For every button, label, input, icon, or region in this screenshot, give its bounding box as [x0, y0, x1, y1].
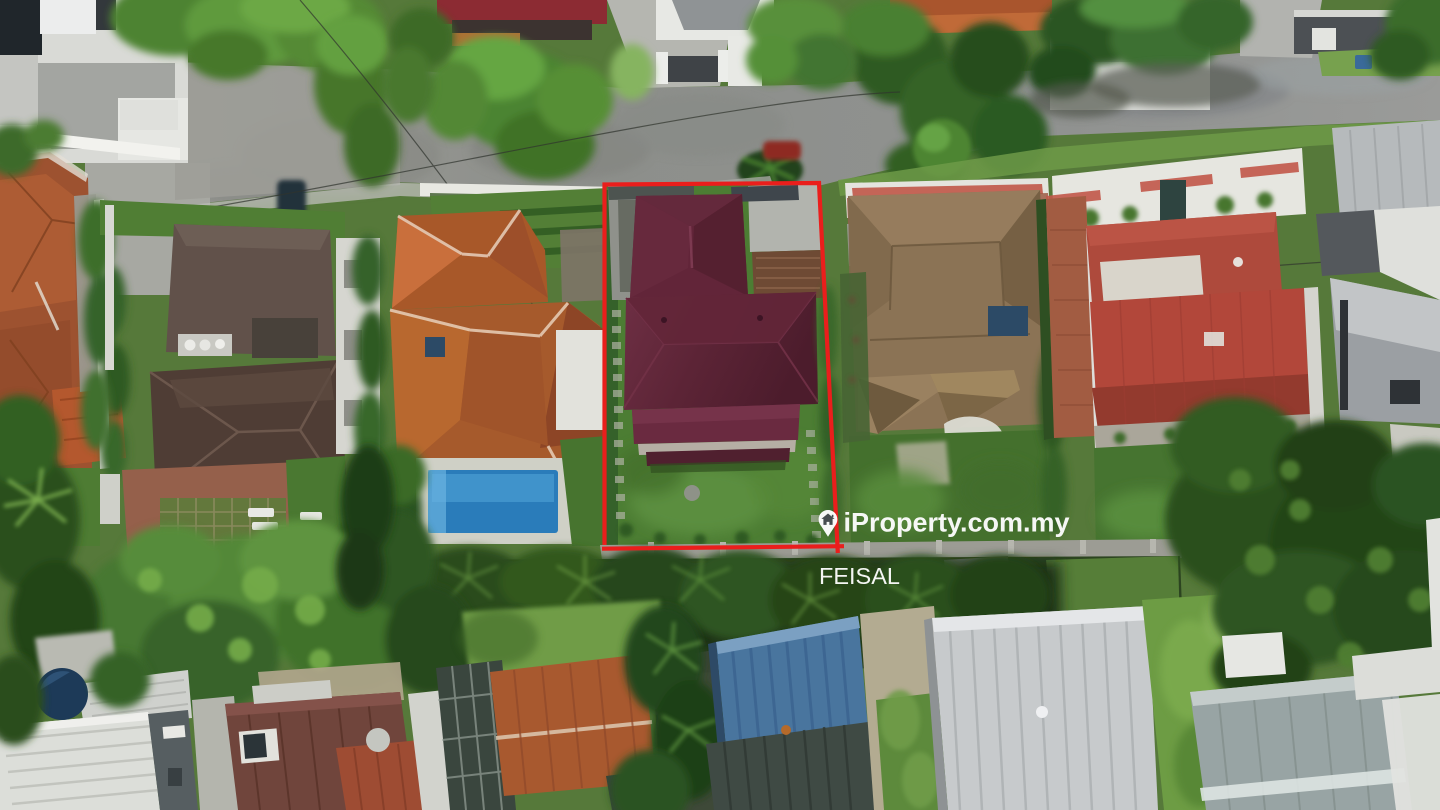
svg-text:iProperty.com.my: iProperty.com.my	[844, 508, 1070, 538]
svg-text:FEISAL: FEISAL	[819, 563, 900, 589]
